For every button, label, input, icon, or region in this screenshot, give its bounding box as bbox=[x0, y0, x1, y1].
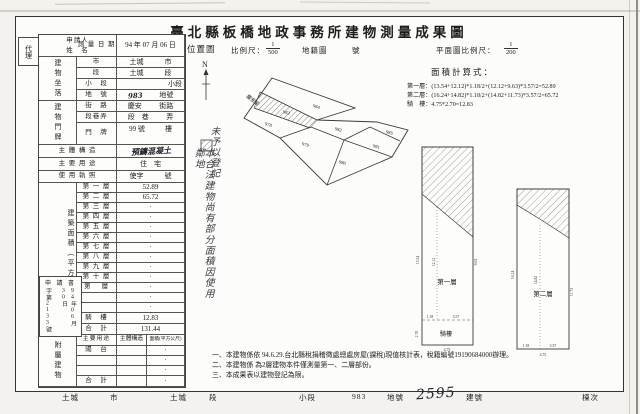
floor-value: · bbox=[117, 273, 185, 283]
floor-label: 第 七 層 bbox=[77, 243, 117, 253]
floor-value: · bbox=[117, 243, 185, 253]
cadastral-number-label: 號 bbox=[352, 45, 361, 56]
annex-use: 合 計 bbox=[77, 376, 117, 387]
city-value: 土城 bbox=[130, 59, 144, 66]
dim-second-left: 16.24 bbox=[511, 271, 515, 280]
annex-area: · bbox=[147, 356, 185, 366]
annex-structure bbox=[117, 366, 147, 376]
site-row-value-cell: 983 地號 bbox=[117, 90, 185, 101]
floor-value: · bbox=[117, 233, 185, 243]
dim-second-right: 11.73 bbox=[570, 288, 574, 297]
dim-second-w1: 1.18 bbox=[523, 344, 530, 348]
footer-unit-label: 棟次 bbox=[582, 392, 599, 403]
footer-parcel-value: 983 bbox=[352, 392, 366, 401]
area-calculation-block: 面積計算式： 第一層：(13.54+12.12)*1.18/2+(12.12+9… bbox=[407, 66, 635, 110]
lane-suffix: 弄 bbox=[166, 114, 173, 121]
city-suffix: 市 bbox=[165, 59, 172, 66]
street-value-cell: 慶安 街路 bbox=[117, 101, 185, 112]
door-no-label: 門 牌 bbox=[77, 123, 117, 145]
annex-use bbox=[77, 356, 117, 366]
area-calc-line-1: 第一層：(13.54+12.12)*1.18/2+(12.12+9.63)*3.… bbox=[407, 83, 635, 92]
scan-edge-line bbox=[0, 10, 640, 12]
cadastral-location-map: N 慶安街 984 983 978 982 985 979 981 980 bbox=[196, 56, 416, 200]
floor-value: · bbox=[117, 203, 185, 213]
license-label: 使 用 執 照 bbox=[39, 171, 117, 183]
annex-group-label: 附屬建物 bbox=[54, 341, 61, 381]
floor-value: 52.89 bbox=[117, 183, 185, 193]
annex-group-cell: 附屬建物 bbox=[39, 335, 77, 387]
application-date-column: 94年06月30日 bbox=[60, 288, 78, 334]
survey-date-label: 測 量 日 期 bbox=[77, 35, 117, 57]
application-title: 申 請 書 bbox=[40, 277, 81, 287]
map-outer-boundary bbox=[244, 78, 408, 185]
door-no-value: 99 號 bbox=[129, 126, 145, 133]
floor-value: · bbox=[117, 253, 185, 263]
site-group-label: 建物坐落 bbox=[54, 59, 61, 99]
scanned-survey-document: 臺北縣板橋地政事務所建物測量成果圖 代理 申請人 姓 名 測 量 日 期 94 … bbox=[0, 0, 640, 414]
floor-value: · bbox=[117, 303, 185, 313]
arcade-area-label: 騎樓 bbox=[440, 330, 452, 338]
arcade-label: 騎 樓 bbox=[77, 313, 117, 324]
total-label: 合 計 bbox=[77, 324, 117, 335]
dim-first-right: 9.63 bbox=[474, 259, 478, 266]
floor-value: · bbox=[117, 223, 185, 233]
floor-label: 第 三 層 bbox=[77, 203, 117, 213]
annex-structure bbox=[117, 376, 147, 387]
north-arrow-head bbox=[204, 69, 209, 75]
second-floor-label: 第二層 bbox=[533, 289, 553, 298]
north-label: N bbox=[202, 60, 208, 69]
door-no-value-cell: 99 號 樓 bbox=[117, 123, 185, 145]
dim-second-w2: 3.57 bbox=[550, 344, 557, 348]
annex-use: 陽 台 bbox=[77, 346, 117, 356]
plan-scale-numerator: 1 bbox=[509, 41, 512, 48]
plan-scale-label: 平面圖比例尺： bbox=[436, 45, 496, 56]
site-row-value-cell: 小段 bbox=[117, 79, 185, 90]
annex-area: · bbox=[147, 346, 185, 356]
scale-label: 比例尺： bbox=[231, 45, 265, 56]
agent-label: 代理 bbox=[24, 45, 34, 59]
scan-ghost-mark bbox=[300, 2, 430, 4]
parcel-label-982: 982 bbox=[334, 126, 343, 133]
floor-label: 第 層 bbox=[77, 283, 117, 293]
usage-value: 住 宅 bbox=[117, 158, 185, 171]
footer-section-label: 段 bbox=[209, 392, 218, 403]
first-floor-label: 第一層 bbox=[437, 277, 457, 286]
plan-scale-denominator: 200 bbox=[504, 48, 518, 56]
remarks-block: 一、本建物係依 94.6.29.台北縣稅捐稽徵處總處房屋(課稅)現值核計表，稅籍… bbox=[212, 351, 618, 381]
area-calc-line-3: 騎 樓：4.75*2.70=12.83 bbox=[407, 101, 635, 110]
door-group-cell: 建物門牌 bbox=[39, 101, 77, 145]
cadastral-map-label: 地籍圖 bbox=[302, 45, 328, 56]
annex-area: · bbox=[147, 376, 185, 387]
arcade-value: 12.83 bbox=[117, 313, 185, 324]
site-row-label: 小 段 bbox=[77, 79, 117, 90]
annex-header-area: 面積(平方公尺) bbox=[147, 335, 185, 346]
parcel-label-984: 984 bbox=[312, 103, 321, 110]
floor-value: · bbox=[117, 263, 185, 273]
street-label: 街 路 bbox=[77, 101, 117, 112]
section-suffix: 段 bbox=[165, 70, 172, 77]
site-row-label: 市 bbox=[77, 57, 117, 68]
floor-value: 65.72 bbox=[117, 193, 185, 203]
floor-label: 第 十 層 bbox=[77, 273, 117, 283]
annex-structure bbox=[117, 356, 147, 366]
lane-value-cell: 段 巷 弄 bbox=[117, 112, 185, 123]
street-value: 慶安 bbox=[128, 103, 142, 110]
floor-value: · bbox=[117, 293, 185, 303]
floor-plan-drawings: 第一層 騎樓 13.54 12.12 9.63 1.18 3.57 2.70 4… bbox=[404, 110, 640, 360]
annex-header-structure: 主體構造 bbox=[117, 335, 147, 346]
scale-numerator: 1 bbox=[271, 41, 274, 48]
footer-city-label: 市 bbox=[110, 392, 119, 403]
area-calc-line-2: 第二層：(16.24+14.82)*1.18/2+(14.82+11.73)*3… bbox=[407, 92, 635, 101]
remark-line-3: 三、本成果表以建物登記為限。 bbox=[212, 371, 618, 381]
location-map-title: 位置圖 bbox=[187, 43, 216, 55]
survey-date-value: 94 年 07 月 06 日 bbox=[117, 35, 185, 57]
lane-label: 段巷弄 bbox=[77, 112, 117, 123]
agent-box: 代理 bbox=[18, 37, 39, 66]
annex-area: · bbox=[147, 366, 185, 376]
footer-subsection-label: 小段 bbox=[299, 392, 316, 403]
parcel-number-handwritten: 983 bbox=[127, 91, 142, 99]
handwritten-note-column-1: 本合法建物尚有部分面積因使用鄰地 bbox=[193, 148, 213, 308]
footer-section-value: 土城 bbox=[170, 392, 187, 403]
dim-arcade-height: 2.70 bbox=[415, 331, 419, 338]
site-group-cell: 建物坐落 bbox=[39, 57, 77, 101]
scale-fraction: 1500 bbox=[266, 39, 280, 57]
site-row-label: 地 號 bbox=[77, 90, 117, 101]
license-prefix: 使字 bbox=[130, 173, 144, 180]
dim-first-w1: 1.18 bbox=[427, 315, 434, 319]
door-no-suffix: 樓 bbox=[165, 126, 172, 133]
footer-parcel-label: 地號 bbox=[387, 392, 404, 403]
section-value: 土城 bbox=[130, 70, 144, 77]
annex-structure bbox=[117, 346, 147, 356]
floor-label: 第 一 層 bbox=[77, 183, 117, 193]
total-value: 131.44 bbox=[117, 324, 185, 335]
floor-label: 第 二 層 bbox=[77, 193, 117, 203]
area-calc-title: 面積計算式： bbox=[431, 66, 635, 78]
floor-label: 第 八 層 bbox=[77, 253, 117, 263]
floor-label: 第 九 層 bbox=[77, 263, 117, 273]
dim-second-mid: 14.82 bbox=[534, 276, 538, 285]
lane-value: 段 巷 bbox=[128, 114, 149, 121]
site-row-value-cell: 土城 市 bbox=[117, 57, 185, 68]
subsection-suffix: 小段 bbox=[168, 81, 182, 88]
structure-value-cell: 預鑄混凝土 bbox=[117, 145, 185, 158]
street-suffix: 街路 bbox=[159, 103, 173, 110]
floor-value: · bbox=[117, 213, 185, 223]
footer-city-value: 土城 bbox=[62, 392, 79, 403]
parcel-suffix: 地號 bbox=[159, 92, 173, 99]
footer-building-number-handwritten: 2595 bbox=[415, 385, 456, 404]
application-box: 申 請 書 字第2133號 94年06月30日 bbox=[39, 276, 82, 337]
door-group-label: 建物門牌 bbox=[54, 103, 61, 143]
scan-ghost-mark bbox=[55, 2, 225, 4]
license-suffix: 號 bbox=[165, 173, 172, 180]
usage-label: 主 要 用 途 bbox=[39, 158, 117, 171]
annex-header-use: 主要用途 bbox=[77, 335, 117, 346]
parcel-label-979: 979 bbox=[301, 141, 310, 148]
site-row-label: 段 bbox=[77, 68, 117, 79]
parcel-label-981: 981 bbox=[372, 143, 381, 150]
footer-building-label: 建號 bbox=[466, 392, 483, 403]
structure-label: 主 體 構 造 bbox=[39, 145, 117, 158]
dim-first-mid: 12.12 bbox=[432, 258, 436, 267]
floor-label bbox=[77, 303, 117, 313]
floor-label: 第 五 層 bbox=[77, 223, 117, 233]
scale-denominator: 500 bbox=[266, 48, 280, 56]
annex-use bbox=[77, 366, 117, 376]
floor-value: · bbox=[117, 283, 185, 293]
application-number-column: 字第2133號 bbox=[44, 288, 53, 334]
floor-label bbox=[77, 293, 117, 303]
plan-scale-fraction: 1200 bbox=[504, 39, 518, 57]
license-value-cell: 使字 號 bbox=[117, 171, 185, 183]
site-row-value-cell: 土城 段 bbox=[117, 68, 185, 79]
floor-label: 第 四 層 bbox=[77, 213, 117, 223]
structure-value-handwritten: 預鑄混凝土 bbox=[130, 146, 170, 156]
remark-line-2: 二、本建物係 為2層建物本件僅測量第一、二層部份。 bbox=[212, 361, 618, 371]
parcel-label-980: 980 bbox=[338, 159, 347, 166]
floor-label: 第 六 層 bbox=[77, 233, 117, 243]
parcel-label-978: 978 bbox=[264, 121, 273, 128]
remark-line-1: 一、本建物係依 94.6.29.台北縣稅捐稽徵處總處房屋(課稅)現值核計表，稅籍… bbox=[212, 351, 618, 361]
dim-first-left: 13.54 bbox=[416, 256, 420, 265]
dim-first-w2: 3.57 bbox=[453, 315, 460, 319]
